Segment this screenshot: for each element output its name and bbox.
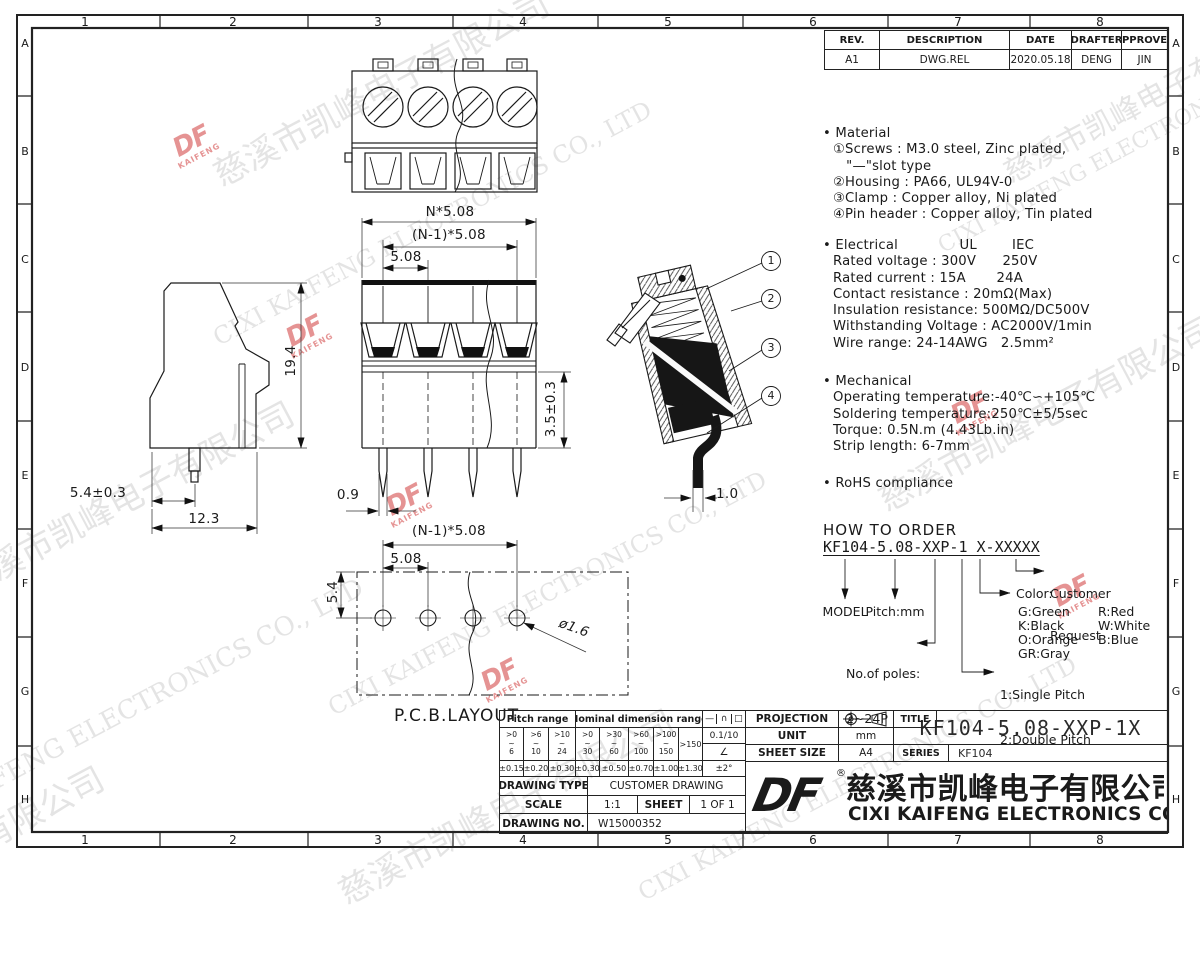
company-name-cn: 慈溪市凯峰电子有限公司 — [846, 764, 1164, 808]
drawing-no-value: W15000352 — [588, 814, 746, 833]
mechanical-title: • Mechanical — [823, 374, 1095, 390]
tol-cell: ±0.20 — [524, 761, 549, 777]
range-cell: >6~10 — [524, 728, 549, 761]
tol-cell: ±0.30 — [576, 761, 600, 777]
rev-header: REV. — [825, 31, 880, 50]
title-cell: TITLE KF104-5.08-XXP-1X — [894, 711, 1167, 745]
registered-mark: ® — [836, 768, 846, 779]
tol-cell: ±0.15 — [500, 761, 524, 777]
dim-front-height: 3.5±0.3 — [543, 371, 559, 447]
grid-col-label: 4 — [515, 14, 531, 30]
callout-4: 4 — [761, 386, 781, 406]
grid-col-label: 7 — [950, 832, 966, 848]
section-view — [607, 252, 781, 489]
drafter-value: DENG — [1072, 50, 1122, 69]
range-cell: >0~6 — [500, 728, 524, 761]
grid-col-label: 4 — [515, 832, 531, 848]
sheet-value: 1 OF 1 — [690, 796, 746, 814]
top-view — [345, 59, 537, 192]
grid-row-label: C — [1168, 252, 1184, 268]
grid-col-label: 8 — [1092, 832, 1108, 848]
grid-col-label: 1 — [77, 14, 93, 30]
callout-1: 1 — [761, 251, 781, 271]
projection-label: PROJECTION — [746, 711, 839, 728]
range-cell: >30~60 — [600, 728, 629, 761]
electrical-spec: • Electrical UL IEC Rated voltage : 300V… — [823, 238, 1092, 352]
range-cell: >100~150 — [654, 728, 679, 761]
series-cell: SERIES KF104 — [894, 745, 1167, 762]
grid-col-label: 5 — [660, 14, 676, 30]
description-header: DESCRIPTION — [880, 31, 1010, 50]
dim-section-pin: 1.0 — [716, 486, 756, 502]
grid-row-label: A — [1168, 36, 1184, 52]
tol-cell: ±0.30 — [549, 761, 576, 777]
grid-row-label: F — [1168, 576, 1184, 592]
callout-3: 3 — [761, 338, 781, 358]
grid-row-label: G — [17, 684, 33, 700]
title-block: Pitch range Nominal dimension range — ∩ … — [499, 710, 1168, 834]
approver-header: APPROVER — [1122, 31, 1167, 50]
grid-row-label: B — [17, 144, 33, 160]
dim-side-height: 19.4 — [283, 326, 299, 396]
dim-front-pitch: 5.08 — [378, 249, 434, 265]
tol-cell: ±0.70 — [629, 761, 654, 777]
description-value: DWG.REL — [880, 50, 1010, 69]
scale-label: SCALE — [500, 796, 588, 814]
date-header: DATE — [1010, 31, 1072, 50]
callout-2: 2 — [761, 289, 781, 309]
grid-col-label: 2 — [225, 832, 241, 848]
dim-front-total: N*5.08 — [404, 204, 496, 220]
projection-symbol-icon — [841, 711, 891, 727]
sheet-size-label: SHEET SIZE — [746, 745, 839, 762]
grid-row-label: B — [1168, 144, 1184, 160]
range-cell: >60~100 — [629, 728, 654, 761]
unit-value: mm — [839, 728, 894, 745]
drafter-header: DRAFTER — [1072, 31, 1122, 50]
grid-col-label: 6 — [805, 14, 821, 30]
title-tag: TITLE — [894, 711, 937, 728]
side-view — [150, 283, 269, 482]
dim-pcb-pitch: 5.08 — [378, 551, 434, 567]
order-code: KF104-5.08-XXP-1 X-XXXXX — [823, 538, 1040, 556]
flatness-cell: 0.1/10 — [703, 728, 746, 744]
drawing-title: KF104-5.08-XXP-1X — [920, 716, 1142, 740]
dim-side-width: 12.3 — [168, 511, 240, 527]
dim-side-pin: 5.4±0.3 — [52, 485, 144, 501]
grid-row-label: H — [1168, 792, 1184, 808]
order-color-label: Color: — [1016, 586, 1053, 601]
grid-row-label: C — [17, 252, 33, 268]
pitch-range-header: Pitch range — [500, 711, 576, 728]
order-pitch-label: Pitch:mm — [862, 604, 928, 619]
scale-value: 1:1 — [588, 796, 638, 814]
approver-value: JIN — [1122, 50, 1167, 69]
series-tag: SERIES — [894, 745, 949, 762]
front-view — [361, 280, 537, 497]
mechanical-spec: • Mechanical Operating temperature:-40℃∽… — [823, 374, 1095, 455]
tol-cell: ±1.00 — [654, 761, 679, 777]
dim-pcb-span: (N-1)*5.08 — [394, 523, 504, 539]
material-title: • Material — [823, 126, 1093, 142]
grid-col-label: 8 — [1092, 14, 1108, 30]
grid-col-label: 3 — [370, 14, 386, 30]
tol-cell: ±1.30 — [679, 761, 703, 777]
dim-front-pin-width: 0.9 — [330, 487, 366, 503]
projection-symbol-icon — [839, 711, 894, 728]
order-customer-label: Customer Request — [1050, 559, 1111, 657]
drawing-type-label: DRAWING TYPE — [500, 777, 588, 796]
grid-col-label: 5 — [660, 832, 676, 848]
company-logo: DF — [749, 772, 822, 818]
rev-value: A1 — [825, 50, 880, 69]
angle-symbol-cell: ∠ — [703, 744, 746, 761]
range-cell: >10~24 — [549, 728, 576, 761]
grid-row-label: D — [1168, 360, 1184, 376]
revision-table: REV. DESCRIPTION DATE DRAFTER APPROVER A… — [824, 30, 1168, 70]
angle-tol-cell: ±2° — [703, 761, 746, 777]
grid-col-label: 2 — [225, 14, 241, 30]
unit-label: UNIT — [746, 728, 839, 745]
grid-col-label: 1 — [77, 832, 93, 848]
dim-pcb-edge: 5.4 — [325, 572, 341, 612]
electrical-title: • Electrical UL IEC — [823, 238, 1092, 254]
company-area: DF ® 慈溪市凯峰电子有限公司 CIXI KAIFENG ELECTRONIC… — [746, 762, 1167, 833]
material-spec: • Material ①Screws : M3.0 steel, Zinc pl… — [823, 126, 1093, 224]
sheet-size-value: A4 — [839, 745, 894, 762]
grid-row-label: F — [17, 576, 33, 592]
range-cell: >0~30 — [576, 728, 600, 761]
grid-row-label: H — [17, 792, 33, 808]
grid-row-label: E — [17, 468, 33, 484]
geometry-symbols: — ∩ □ — [703, 711, 746, 728]
rohs-spec: • RoHS compliance — [823, 476, 953, 492]
grid-col-label: 3 — [370, 832, 386, 848]
grid-row-label: G — [1168, 684, 1184, 700]
dim-front-span: (N-1)*5.08 — [394, 227, 504, 243]
company-name-en: CIXI KAIFENG ELECTRONICS CO.,LTD — [848, 804, 1167, 825]
drawing-no-label: DRAWING NO. — [500, 814, 588, 833]
grid-col-label: 6 — [805, 832, 821, 848]
range-last-cell: >150 — [679, 728, 703, 761]
sheet-label: SHEET — [638, 796, 690, 814]
grid-row-label: A — [17, 36, 33, 52]
nominal-range-header: Nominal dimension range — [576, 711, 703, 728]
grid-col-label: 7 — [950, 14, 966, 30]
how-to-order-title: HOW TO ORDER — [823, 521, 957, 539]
grid-row-label: D — [17, 360, 33, 376]
grid-row-label: E — [1168, 468, 1184, 484]
drawing-type-value: CUSTOMER DRAWING — [588, 777, 746, 796]
date-value: 2020.05.18 — [1010, 50, 1072, 69]
tol-cell: ±0.50 — [600, 761, 629, 777]
